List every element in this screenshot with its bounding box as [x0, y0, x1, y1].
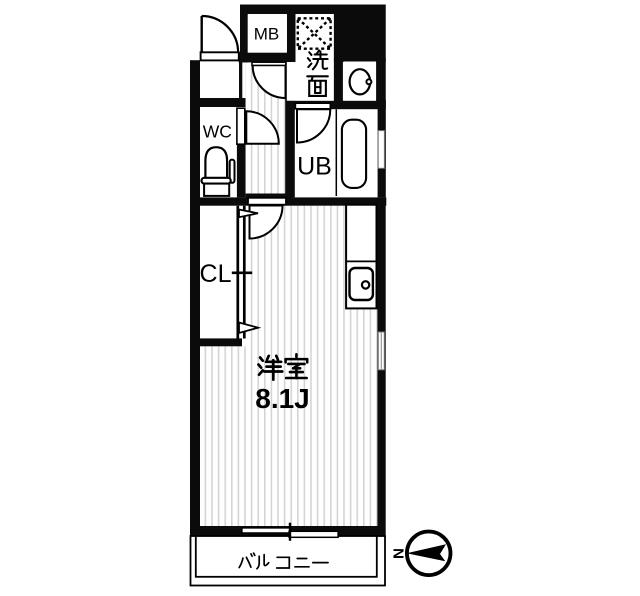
- svg-text:WC: WC: [203, 122, 232, 142]
- svg-text:MB: MB: [254, 25, 280, 44]
- svg-text:N: N: [390, 548, 407, 559]
- svg-text:UB: UB: [297, 153, 332, 181]
- svg-text:8.1J: 8.1J: [255, 383, 310, 414]
- svg-text:CL: CL: [200, 260, 232, 288]
